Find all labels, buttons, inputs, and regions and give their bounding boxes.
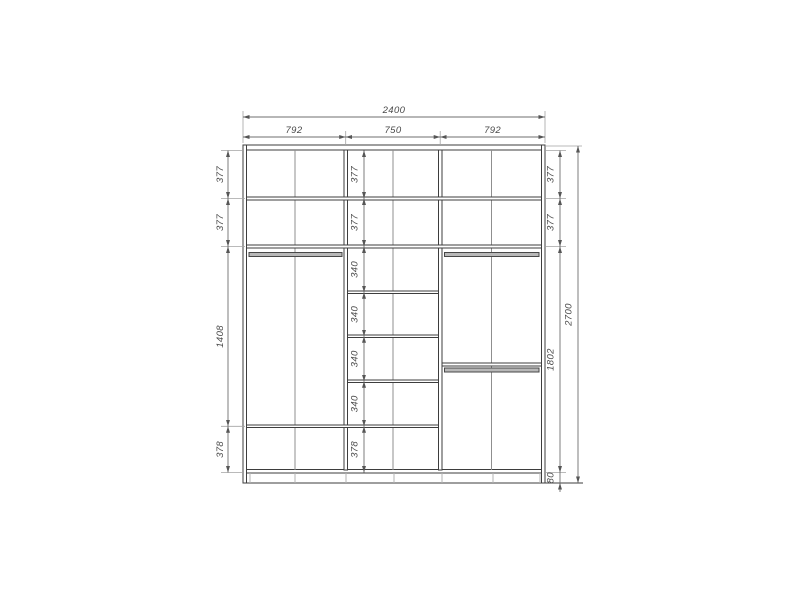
dimension-lines [221,111,582,492]
dim-label-left-4: 378 [215,441,226,458]
right-mid-shelf [442,363,542,366]
dim-label-middle-1: 377 [350,166,361,183]
plinth-ticks [250,473,540,483]
technical-drawing-page: 2400 792 750 792 377 377 1408 378 377 37… [0,0,800,600]
middle-shelf-3 [348,380,439,383]
dim-label-left-2: 377 [215,214,226,231]
bottom-panel [247,470,542,474]
dim-label-middle-2: 377 [350,214,361,231]
hanging-rod-right-lower [445,368,540,372]
dim-label-right-2: 377 [546,214,557,231]
middle-shelf-2 [348,335,439,338]
dim-label-total-height: 2700 [564,303,575,327]
dim-label-right-4: 80 [546,472,557,484]
dim-label-section-middle: 750 [384,125,401,136]
dim-label-left-1: 377 [215,166,226,183]
wardrobe-drawing: 2400 792 750 792 377 377 1408 378 377 37… [0,0,800,600]
dim-label-section-left: 792 [285,125,302,136]
dim-label-middle-6: 340 [350,395,361,412]
top-panel [243,145,545,150]
middle-shelf-1 [348,291,439,294]
dim-label-left-3: 1408 [215,325,226,348]
wardrobe-structure [243,145,583,483]
dim-label-middle-7: 378 [350,441,361,458]
shelf-row-1 [247,197,542,200]
shelf-row-2 [247,245,542,248]
dim-label-total-width: 2400 [382,105,406,116]
dim-label-right-3: 1802 [546,348,557,371]
bottom-shelf-left-middle [247,425,439,428]
dim-label-middle-5: 340 [350,350,361,367]
left-side-panel [243,145,247,483]
dim-label-middle-4: 340 [350,305,361,322]
hanging-rod-right-top [445,253,540,257]
hanging-rod-left [249,253,342,257]
dim-label-section-right: 792 [484,125,501,136]
dim-label-middle-3: 340 [350,261,361,278]
right-side-panel [542,145,546,483]
dim-label-right-1: 377 [546,166,557,183]
